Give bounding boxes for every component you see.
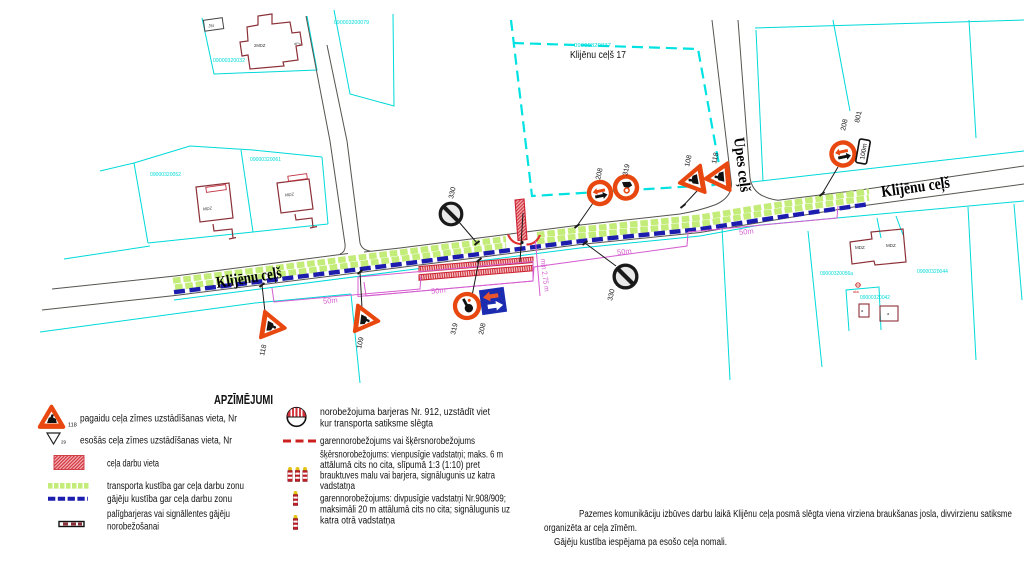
svg-text:09000320056a: 09000320056a [820,271,853,277]
svg-text:pagaidu ceļa zīmes uzstādīšana: pagaidu ceļa zīmes uzstādīšanas vieta, N… [80,414,238,425]
svg-text:Klijēnu ceļš 17: Klijēnu ceļš 17 [570,50,626,61]
svg-text:09000320061: 09000320061 [250,157,281,163]
svg-text:090003200079: 090003200079 [334,20,369,26]
svg-text:garennorobežojums vai šķērsnor: garennorobežojums vai šķērsnorobežojums [320,436,475,447]
svg-text:Gājēju kustība iespējama pa es: Gājēju kustība iespējama pa esošo ceļa n… [554,537,727,548]
svg-text:MDZ: MDZ [886,243,896,248]
svg-text:118: 118 [68,423,77,429]
svg-text:norobežošanai: norobežošanai [107,522,159,533]
svg-text:maksimāli 20 m attālumā cits n: maksimāli 20 m attālumā cits no cita; si… [320,505,510,516]
svg-text:vadstatņa: vadstatņa [320,481,355,492]
svg-text:palīgbarjeras vai signāllentes: palīgbarjeras vai signāllentes gājēju [107,509,230,520]
svg-text:katra otrā vadstatņa: katra otrā vadstatņa [320,516,395,527]
svg-text:29: 29 [61,440,67,445]
svg-text:attālumā cits no cita, slīpumā: attālumā cits no cita, slīpumā 1:3 (1:10… [320,460,480,471]
svg-text:dPu: dPu [294,41,301,46]
svg-text:gājēju kustība gar ceļa darbu: gājēju kustība gar ceļa darbu zonu [107,494,232,505]
svg-text:50m: 50m [431,285,446,295]
svg-text:APZĪMĒJUMI: APZĪMĒJUMI [214,393,273,407]
svg-text:organizēta ar ceļa zīmēm.: organizēta ar ceļa zīmēm. [544,523,637,534]
svg-text:ceļa darbu vieta: ceļa darbu vieta [107,459,159,470]
svg-text:kur transporta satiksme slēgta: kur transporta satiksme slēgta [320,419,433,430]
svg-text:50m: 50m [323,295,338,305]
svg-text:09000320052: 09000320052 [150,172,181,178]
svg-text:transporta kustība gar ceļa da: transporta kustība gar ceļa darbu zonu [107,481,244,492]
svg-text:esošās ceļa zīmes uzstādīšanas: esošās ceļa zīmes uzstādīšanas vieta, Nr [80,436,233,447]
svg-text:MDZ: MDZ [855,245,865,250]
svg-text:aka: aka [853,290,859,294]
svg-text:2MDZ: 2MDZ [254,43,266,48]
svg-text:norobežojuma barjeras Nr. 912,: norobežojuma barjeras Nr. 912, uzstādīt … [320,407,490,418]
svg-text:JN: JN [208,23,214,29]
svg-text:09000320037: 09000320037 [574,43,611,49]
svg-text:50m: 50m [739,226,754,236]
svg-text:garennorobežojums: divpusīgie: garennorobežojums: divpusīgie vadstatņi … [320,494,506,505]
svg-text:09000320042: 09000320042 [860,295,890,301]
svg-text:Pazemes komunikāciju izbūves d: Pazemes komunikāciju izbūves darbu laikā… [579,509,1012,520]
svg-text:50m: 50m [617,246,632,256]
svg-text:šķērsnorobežojums: vienpusīgie: šķērsnorobežojums: vienpusīgie vadstatņi… [320,450,503,461]
svg-text:brauktuves malu vai barjera, s: brauktuves malu vai barjera, signāluguni… [320,471,495,482]
svg-text:09000320032: 09000320032 [213,58,245,64]
svg-text:09000320044: 09000320044 [917,269,948,275]
